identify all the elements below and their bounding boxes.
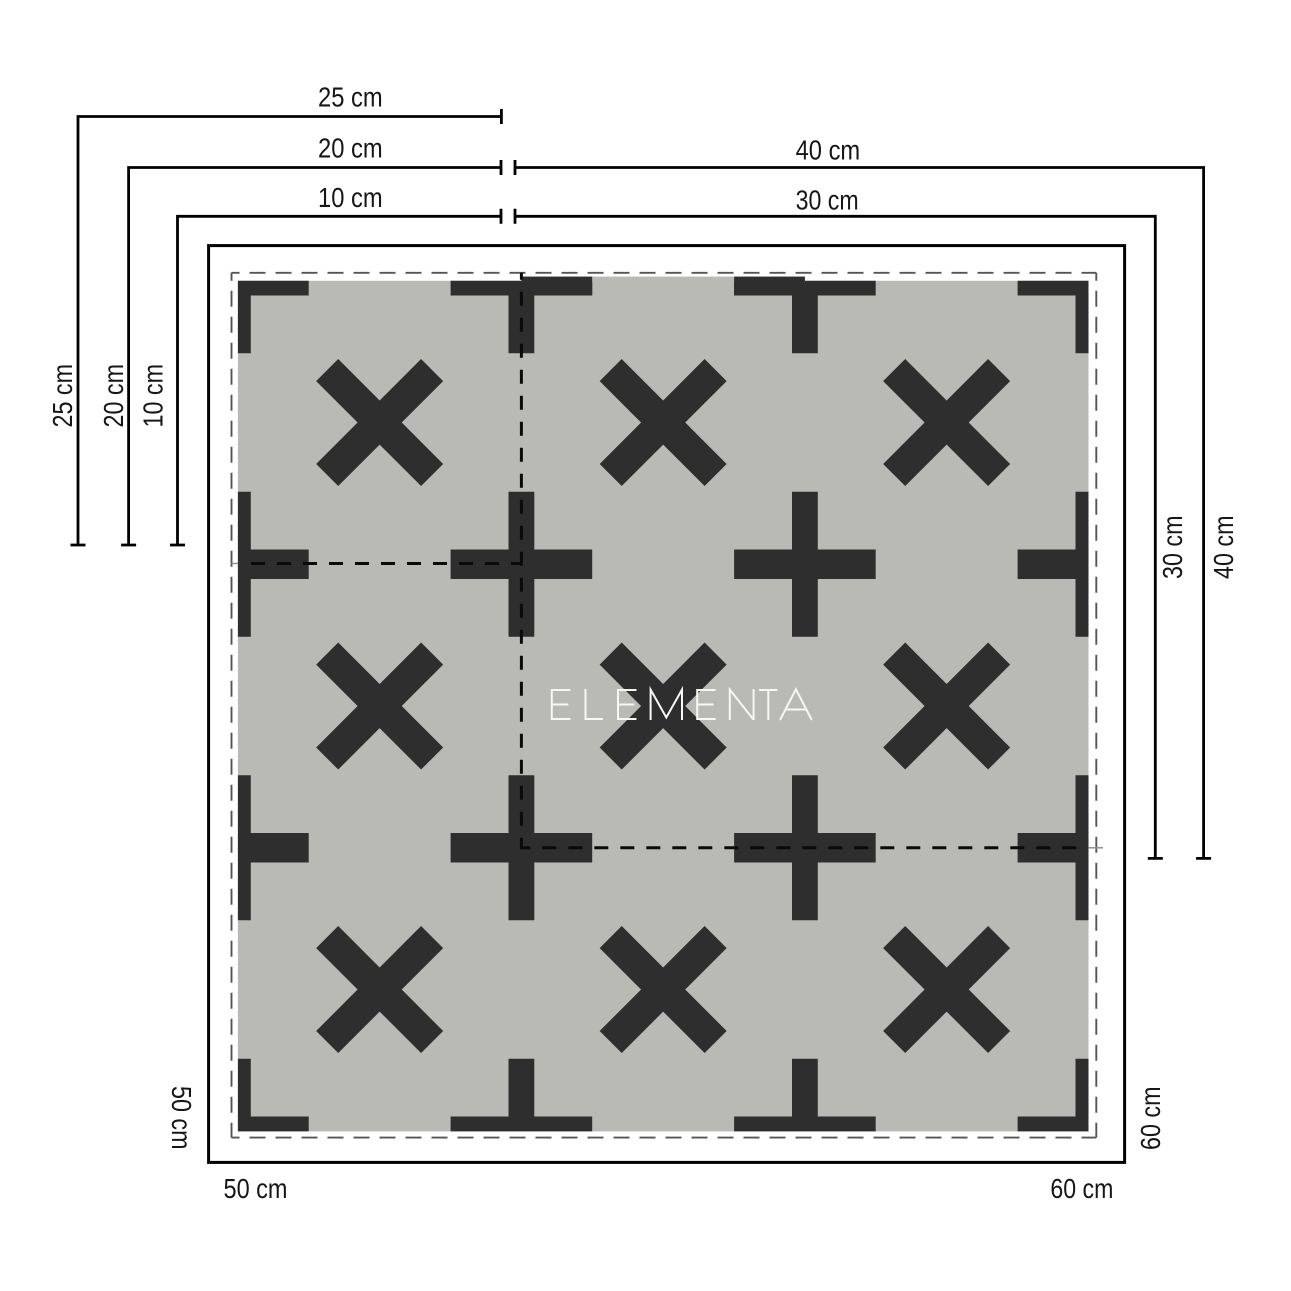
svg-text:30 cm: 30 cm: [1157, 516, 1188, 580]
svg-text:30 cm: 30 cm: [796, 185, 859, 216]
svg-text:40 cm: 40 cm: [1208, 516, 1239, 580]
svg-text:10 cm: 10 cm: [318, 182, 383, 213]
svg-text:60 cm: 60 cm: [1135, 1087, 1166, 1151]
svg-text:20 cm: 20 cm: [318, 133, 383, 164]
svg-text:20 cm: 20 cm: [98, 364, 129, 428]
svg-text:25 cm: 25 cm: [318, 82, 383, 113]
svg-text:40 cm: 40 cm: [796, 135, 861, 166]
svg-text:25 cm: 25 cm: [47, 364, 78, 428]
svg-text:10 cm: 10 cm: [138, 364, 169, 428]
svg-text:50 cm: 50 cm: [166, 1086, 197, 1150]
svg-text:50 cm: 50 cm: [224, 1173, 288, 1204]
svg-text:60 cm: 60 cm: [1050, 1173, 1113, 1204]
